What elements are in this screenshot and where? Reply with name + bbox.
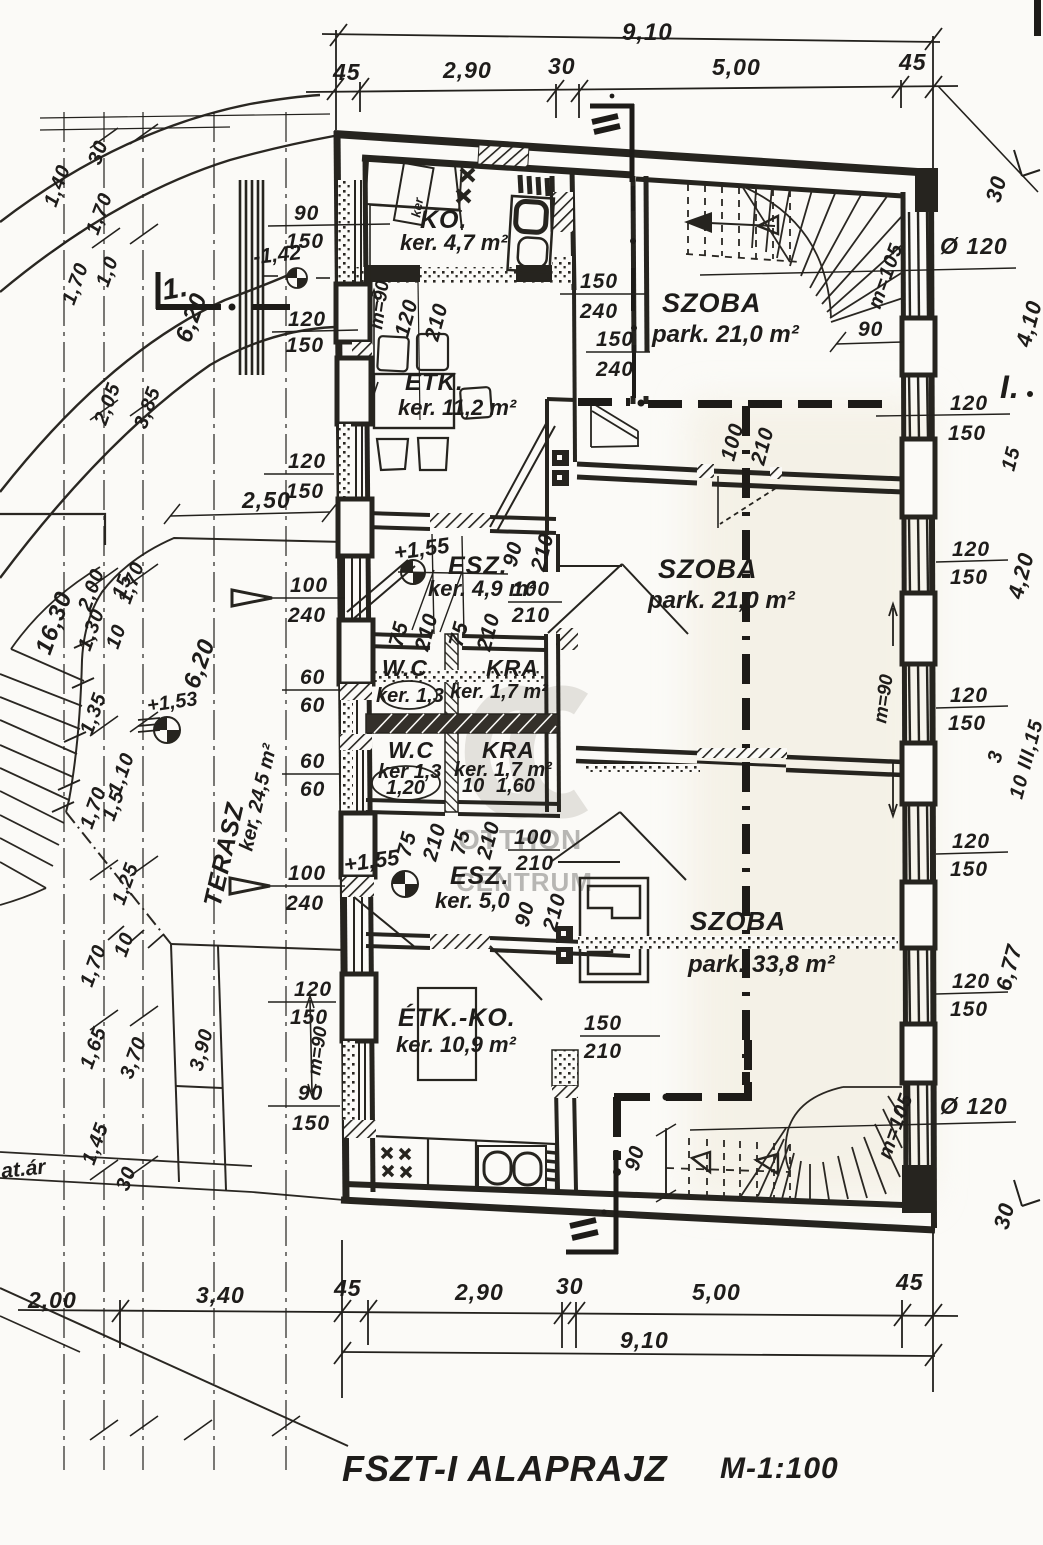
svg-text:ker. 11,2 m²: ker. 11,2 m²	[398, 395, 517, 420]
svg-text:W.C: W.C	[382, 655, 428, 681]
svg-text:Ø 120: Ø 120	[940, 1093, 1008, 1119]
svg-text:ker. 10,9 m²: ker. 10,9 m²	[396, 1032, 517, 1057]
svg-text:90: 90	[294, 202, 319, 225]
svg-text:45: 45	[333, 1275, 362, 1301]
svg-text:3,40: 3,40	[196, 1282, 245, 1308]
svg-text:150: 150	[286, 480, 324, 503]
svg-text:at.ár: at.ár	[0, 1155, 48, 1183]
svg-text:210: 210	[511, 604, 550, 627]
svg-text:9,10: 9,10	[622, 19, 673, 46]
svg-text:W.C: W.C	[388, 737, 434, 763]
svg-text:FSZT-I ALAPRAJZ: FSZT-I ALAPRAJZ	[342, 1448, 669, 1489]
svg-text:150: 150	[950, 566, 988, 589]
svg-text:90: 90	[298, 1082, 323, 1105]
svg-text:ESZ.: ESZ.	[450, 862, 510, 890]
svg-text:park. 21,0 m²: park. 21,0 m²	[647, 587, 796, 614]
svg-text:ETK.: ETK.	[405, 369, 464, 396]
svg-text:45: 45	[895, 1269, 924, 1295]
svg-text:90: 90	[858, 318, 883, 341]
svg-text:150: 150	[948, 712, 986, 735]
svg-text:120: 120	[294, 978, 332, 1001]
svg-text:2,50: 2,50	[241, 487, 291, 513]
svg-text:SZOBA: SZOBA	[658, 554, 758, 584]
svg-text:60: 60	[300, 666, 325, 689]
svg-text:5,00: 5,00	[712, 54, 761, 80]
svg-text:100: 100	[288, 862, 326, 885]
svg-text:30: 30	[548, 53, 576, 79]
svg-text:120: 120	[950, 392, 988, 415]
svg-text:2,90: 2,90	[454, 1279, 504, 1305]
svg-text:150: 150	[950, 998, 988, 1021]
svg-text:120: 120	[952, 830, 990, 853]
svg-text:150: 150	[948, 422, 986, 445]
svg-text:150: 150	[596, 328, 634, 351]
svg-text:210: 210	[515, 852, 554, 875]
svg-text:Ø 120: Ø 120	[940, 233, 1008, 259]
svg-text:5,00: 5,00	[692, 1279, 741, 1305]
svg-text:150: 150	[292, 1112, 330, 1135]
svg-text:2,90: 2,90	[442, 57, 492, 83]
svg-text:10: 10	[462, 775, 484, 797]
svg-text:150: 150	[290, 1006, 328, 1029]
svg-text:240: 240	[285, 892, 324, 915]
svg-text:9,10: 9,10	[620, 1327, 669, 1353]
svg-text:120: 120	[952, 538, 990, 561]
svg-text:240: 240	[595, 358, 634, 381]
svg-text:ker. 1,7 m²: ker. 1,7 m²	[450, 681, 549, 703]
svg-text:ÉTK.-KO.: ÉTK.-KO.	[398, 1003, 516, 1032]
svg-text:120: 120	[950, 684, 988, 707]
svg-text:240: 240	[579, 300, 618, 323]
svg-text:45: 45	[898, 49, 927, 75]
svg-text:150: 150	[950, 858, 988, 881]
svg-text:SZOBA: SZOBA	[690, 906, 786, 936]
svg-text:1,20: 1,20	[386, 777, 425, 799]
svg-text:1,60: 1,60	[496, 775, 535, 797]
svg-text:120: 120	[288, 450, 326, 473]
svg-text:240: 240	[287, 604, 326, 627]
svg-text:park. 21,0 m²: park. 21,0 m²	[651, 321, 800, 348]
svg-text:100: 100	[290, 574, 328, 597]
svg-text:150: 150	[580, 270, 618, 293]
svg-text:100: 100	[514, 826, 552, 849]
svg-text:M-1:100: M-1:100	[720, 1452, 839, 1485]
svg-text:2,00: 2,00	[27, 1287, 77, 1313]
svg-text:I.: I.	[1000, 369, 1020, 405]
svg-text:210: 210	[583, 1040, 622, 1063]
svg-text:120: 120	[952, 970, 990, 993]
svg-text:60: 60	[300, 778, 325, 801]
svg-text:SZOBA: SZOBA	[662, 288, 762, 318]
svg-text:120: 120	[288, 308, 326, 331]
svg-text:ker. 4,7 m²: ker. 4,7 m²	[400, 230, 508, 255]
svg-text:park. 33,8 m²: park. 33,8 m²	[687, 951, 836, 978]
svg-text:60: 60	[300, 750, 325, 773]
svg-text:150: 150	[286, 334, 324, 357]
svg-text:45: 45	[332, 59, 361, 85]
svg-text:KRA: KRA	[486, 655, 539, 681]
svg-text:100: 100	[512, 578, 550, 601]
svg-text:ker. 5,0: ker. 5,0	[435, 888, 510, 913]
svg-text:30: 30	[556, 1273, 584, 1299]
svg-text:60: 60	[300, 694, 325, 717]
